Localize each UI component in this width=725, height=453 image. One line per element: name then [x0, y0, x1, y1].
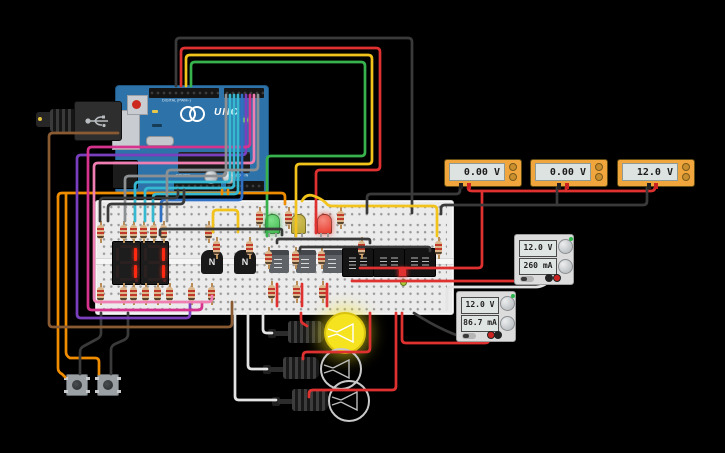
power-supply-2[interactable]: 12.0 V 86.7 mA [456, 291, 516, 342]
wire-bulb1-red[interactable] [301, 313, 307, 326]
psu2-voltage-display: 12.0 V [461, 297, 499, 314]
black-probe[interactable] [459, 183, 463, 189]
psu1-current-display: 260 mA [519, 258, 557, 275]
voltage-knob[interactable] [500, 296, 515, 311]
wire-btn2-black[interactable] [111, 313, 128, 374]
multimeter-1[interactable]: 0.00 V [444, 159, 522, 187]
multimeter-2-display: 0.00 V [535, 163, 591, 181]
psu2-current-display: 86.7 mA [461, 315, 499, 332]
multimeter-mode-button[interactable] [595, 173, 603, 181]
wire-arc-yellow[interactable] [186, 55, 372, 236]
wire-btn1-orange[interactable] [58, 197, 65, 377]
current-knob[interactable] [558, 259, 573, 274]
voltage-knob[interactable] [558, 239, 573, 254]
multimeter-1-display: 0.00 V [449, 163, 505, 181]
black-probe[interactable] [647, 183, 651, 189]
psu1-red-terminal[interactable] [553, 274, 561, 282]
red-probe[interactable] [565, 183, 569, 189]
red-probe[interactable] [654, 183, 658, 189]
wire-bulb3-red[interactable] [309, 313, 396, 397]
plus-indicator-icon [511, 294, 515, 298]
psu2-black-terminal[interactable] [494, 331, 502, 339]
multimeter-mode-button[interactable] [509, 163, 517, 171]
psu2-power-toggle[interactable] [462, 333, 476, 339]
multimeter-mode-button[interactable] [509, 173, 517, 181]
wire-jumper3[interactable] [300, 247, 430, 251]
wire-gray1[interactable] [125, 95, 226, 221]
multimeter-mode-button[interactable] [682, 163, 690, 171]
red-probe[interactable] [467, 183, 471, 189]
wire-mm1-black[interactable] [367, 185, 460, 213]
wire-mm3-black[interactable] [441, 185, 647, 214]
wire-jumper1[interactable] [160, 229, 282, 235]
wire-bulb3-white[interactable] [235, 313, 276, 400]
current-knob[interactable] [500, 316, 515, 331]
wire-yellow-b[interactable] [302, 195, 437, 236]
wire-bulb2-red[interactable] [303, 313, 370, 359]
wires-layer[interactable] [0, 0, 725, 453]
psu1-black-terminal[interactable] [545, 274, 553, 282]
multimeter-3[interactable]: 12.0 V [617, 159, 695, 187]
multimeter-mode-button[interactable] [682, 173, 690, 181]
psu1-power-toggle[interactable] [520, 276, 534, 282]
wire-cyan2[interactable] [145, 95, 234, 221]
multimeter-3-display: 12.0 V [622, 163, 678, 181]
wire-jumper2[interactable] [277, 239, 370, 243]
wire-bulb1-white[interactable] [263, 313, 272, 333]
multimeter-2[interactable]: 0.00 V [530, 159, 608, 187]
black-probe[interactable] [557, 183, 561, 189]
psu1-voltage-display: 12.0 V [519, 240, 557, 257]
plus-indicator-icon [569, 237, 573, 241]
circuit-canvas: UNO DIGITAL (PWM~) POWER ANALOG IN [0, 0, 725, 453]
wire-red-drop[interactable] [450, 191, 482, 268]
multimeter-mode-button[interactable] [595, 163, 603, 171]
power-supply-1[interactable]: 12.0 V 260 mA [514, 234, 574, 285]
wire-gray2[interactable] [167, 95, 258, 221]
